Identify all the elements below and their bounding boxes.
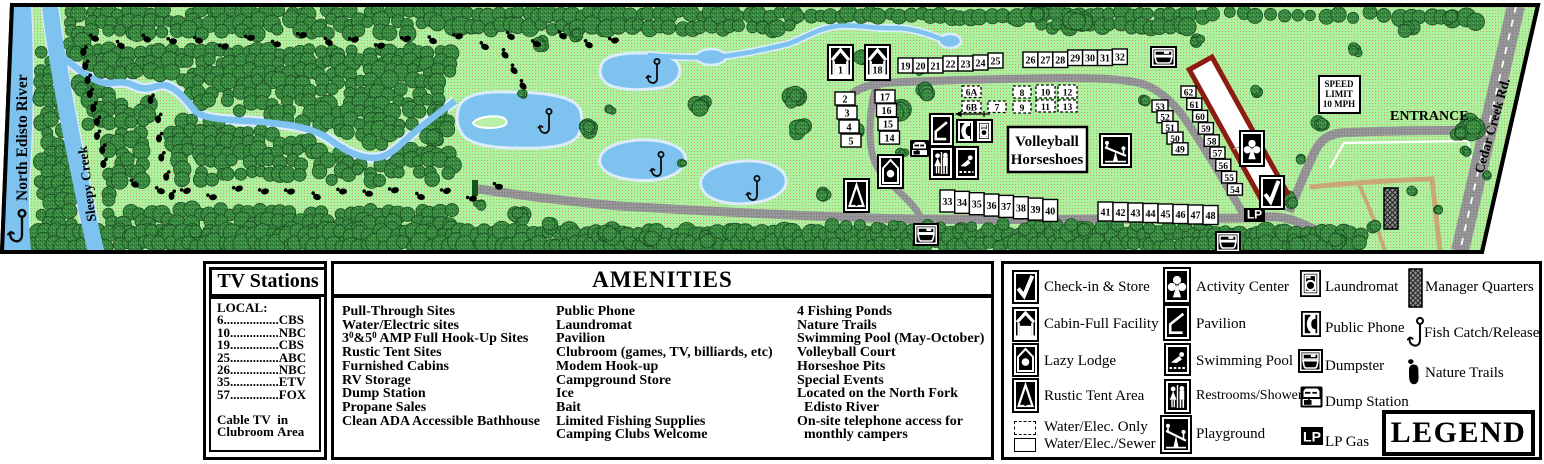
- svg-text:22: 22: [946, 59, 956, 70]
- svg-text:59: 59: [1201, 125, 1211, 135]
- svg-text:58: 58: [1207, 137, 1217, 147]
- svg-text:56: 56: [1219, 162, 1229, 172]
- svg-text:7: 7: [995, 104, 1000, 114]
- svg-text:4: 4: [847, 122, 852, 133]
- svg-text:39: 39: [1031, 205, 1041, 216]
- svg-text:37: 37: [1001, 202, 1011, 213]
- svg-text:44: 44: [1146, 209, 1156, 220]
- svg-text:49: 49: [1175, 146, 1185, 156]
- svg-text:Volleyball: Volleyball: [1015, 134, 1079, 150]
- svg-text:40: 40: [1045, 206, 1055, 217]
- svg-text:13: 13: [1063, 103, 1073, 113]
- svg-text:35: 35: [972, 200, 982, 211]
- svg-text:ENTRANCE: ENTRANCE: [1390, 109, 1469, 124]
- svg-text:61: 61: [1190, 101, 1200, 111]
- svg-text:28: 28: [1055, 56, 1065, 67]
- svg-text:33: 33: [942, 197, 952, 208]
- svg-text:15: 15: [883, 120, 893, 131]
- svg-text:29: 29: [1070, 54, 1080, 65]
- svg-text:North Edisto River: North Edisto River: [14, 74, 31, 201]
- svg-text:14: 14: [885, 133, 895, 144]
- svg-text:1: 1: [838, 66, 843, 77]
- svg-text:30: 30: [1085, 54, 1095, 65]
- svg-text:23: 23: [961, 59, 971, 70]
- svg-text:19: 19: [901, 61, 911, 72]
- svg-text:43: 43: [1131, 208, 1141, 219]
- svg-text:6A: 6A: [966, 89, 978, 99]
- svg-text:24: 24: [976, 58, 986, 69]
- svg-text:6B: 6B: [966, 104, 978, 114]
- svg-text:2: 2: [843, 94, 848, 105]
- svg-text:18: 18: [873, 66, 883, 77]
- svg-text:32: 32: [1115, 53, 1125, 64]
- svg-text:12: 12: [1063, 88, 1073, 98]
- svg-text:LIMIT: LIMIT: [1325, 89, 1353, 99]
- svg-text:41: 41: [1101, 207, 1111, 218]
- svg-text:25: 25: [991, 56, 1001, 67]
- svg-text:42: 42: [1116, 208, 1126, 219]
- svg-text:20: 20: [916, 61, 926, 72]
- svg-text:3: 3: [845, 108, 850, 119]
- svg-text:60: 60: [1195, 113, 1205, 123]
- svg-text:34: 34: [957, 198, 967, 209]
- svg-text:62: 62: [1184, 89, 1194, 99]
- svg-text:46: 46: [1176, 210, 1186, 221]
- svg-text:54: 54: [1230, 186, 1240, 196]
- svg-text:17: 17: [880, 92, 890, 103]
- svg-text:48: 48: [1206, 211, 1216, 222]
- svg-text:57: 57: [1213, 150, 1223, 160]
- svg-text:55: 55: [1224, 174, 1234, 184]
- svg-text:38: 38: [1016, 204, 1026, 215]
- svg-text:11: 11: [1041, 103, 1050, 113]
- svg-text:36: 36: [986, 201, 996, 212]
- svg-text:8: 8: [1020, 89, 1025, 99]
- svg-text:16: 16: [882, 106, 892, 117]
- svg-text:31: 31: [1100, 54, 1110, 65]
- svg-text:SPEED: SPEED: [1324, 79, 1354, 89]
- svg-text:LP: LP: [1247, 208, 1262, 222]
- svg-text:10 MPH: 10 MPH: [1323, 99, 1355, 109]
- svg-text:47: 47: [1191, 210, 1201, 221]
- svg-text:LP: LP: [1303, 429, 1321, 445]
- svg-text:9: 9: [1020, 104, 1025, 114]
- svg-text:10: 10: [1041, 88, 1051, 98]
- svg-text:45: 45: [1161, 209, 1171, 220]
- svg-text:Horseshoes: Horseshoes: [1011, 152, 1084, 168]
- svg-text:5: 5: [849, 136, 854, 147]
- svg-text:26: 26: [1025, 56, 1035, 67]
- svg-text:27: 27: [1040, 56, 1050, 67]
- svg-text:21: 21: [931, 61, 941, 72]
